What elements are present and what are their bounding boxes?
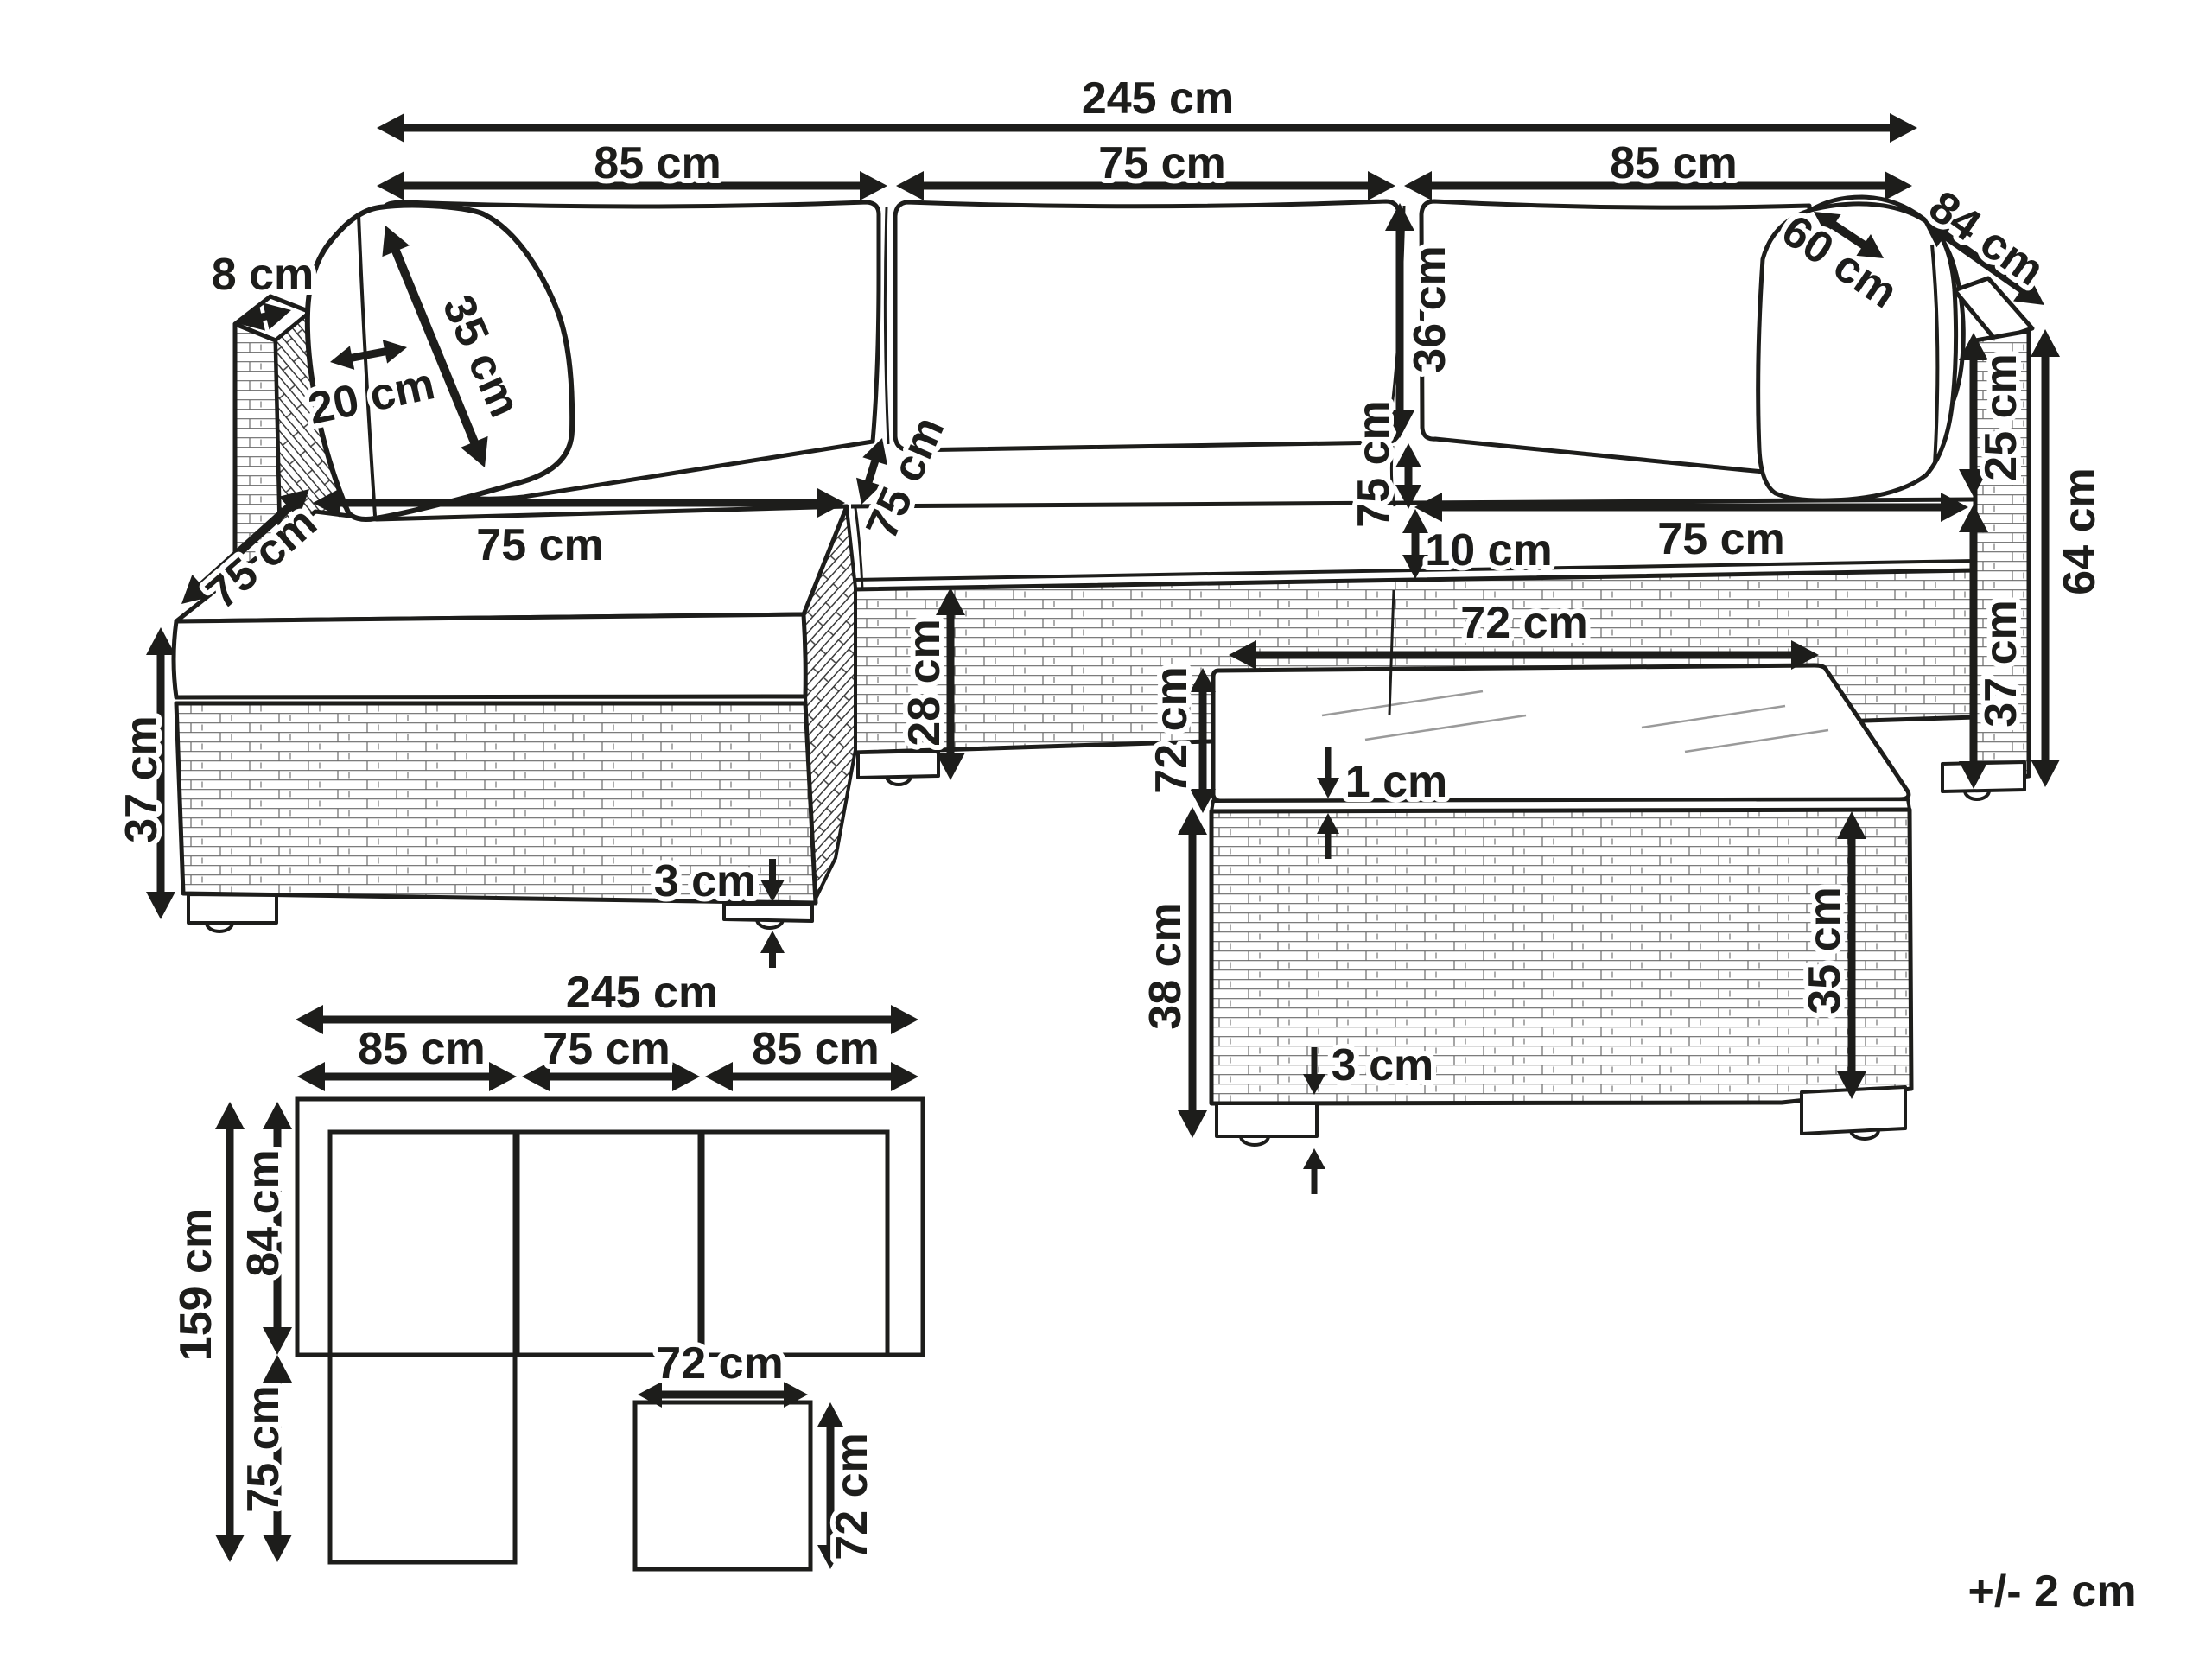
svg-text:85 cm: 85 cm [1610,138,1737,188]
svg-text:159 cm: 159 cm [171,1209,221,1361]
svg-text:35 cm: 35 cm [1800,887,1850,1014]
svg-text:75 cm: 75 cm [1098,138,1225,188]
svg-text:84 cm: 84 cm [238,1149,289,1276]
svg-text:75 cm: 75 cm [1657,514,1784,564]
svg-text:38 cm: 38 cm [1141,902,1191,1029]
svg-text:8 cm: 8 cm [212,250,315,300]
svg-text:64 cm: 64 cm [2055,467,2105,594]
svg-text:10 cm: 10 cm [1425,525,1552,575]
svg-text:75 cm: 75 cm [238,1385,289,1512]
svg-text:245 cm: 245 cm [566,968,718,1018]
svg-text:75 cm: 75 cm [1349,400,1399,527]
svg-text:28 cm: 28 cm [899,619,950,746]
svg-text:72 cm: 72 cm [1460,598,1587,648]
svg-text:85 cm: 85 cm [358,1024,485,1074]
svg-text:72 cm: 72 cm [1147,666,1197,793]
svg-text:85 cm: 85 cm [594,138,721,188]
svg-text:85 cm: 85 cm [752,1024,879,1074]
svg-text:245 cm: 245 cm [1082,73,1234,124]
svg-text:72 cm: 72 cm [656,1338,783,1389]
svg-text:36 cm: 36 cm [1405,245,1455,372]
svg-text:37 cm: 37 cm [117,715,167,842]
svg-text:75 cm: 75 cm [476,520,603,570]
svg-text:25 cm: 25 cm [1976,353,2026,480]
svg-text:1 cm: 1 cm [1345,757,1448,807]
svg-text:3 cm: 3 cm [654,856,757,906]
svg-text:3 cm: 3 cm [1332,1040,1434,1090]
svg-text:72 cm: 72 cm [827,1433,877,1560]
svg-text:75 cm: 75 cm [543,1024,670,1074]
svg-text:37 cm: 37 cm [1976,600,2026,727]
svg-text:+/- 2 cm: +/- 2 cm [1967,1567,2136,1617]
